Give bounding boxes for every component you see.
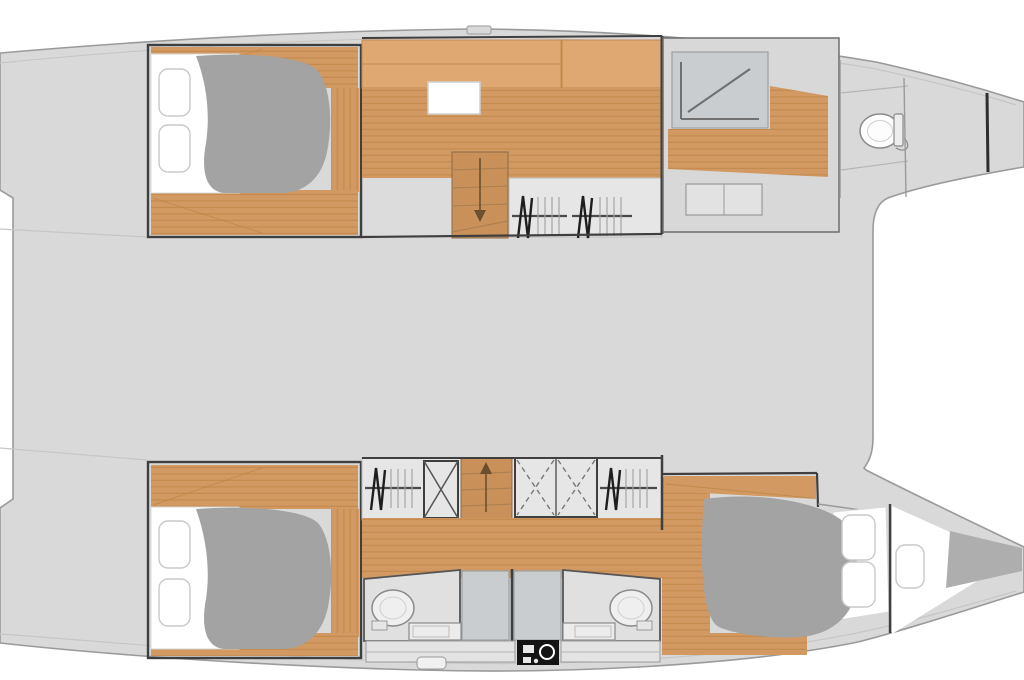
deck-hatch-icon bbox=[467, 26, 491, 34]
owner-bed-pillow-2 bbox=[159, 125, 190, 172]
stairs-up bbox=[461, 458, 512, 520]
vanity-unit bbox=[686, 184, 762, 215]
owner-bed-duvet bbox=[196, 55, 330, 193]
guest-fwd-pillow-1 bbox=[842, 515, 875, 560]
guest-aft-bed-duvet bbox=[196, 508, 331, 649]
guest-aft-pillow-2 bbox=[159, 579, 190, 626]
guest-fwd-bed-duvet bbox=[702, 496, 858, 637]
toilet-icon bbox=[860, 114, 908, 150]
guest-fwd-pillow-2 bbox=[842, 562, 875, 607]
transom-notch bbox=[417, 657, 446, 669]
shower-right bbox=[514, 571, 561, 640]
bow-watertight-bulkhead bbox=[987, 93, 988, 172]
galley-unit-icon bbox=[517, 640, 559, 665]
deck-hatch-white bbox=[428, 82, 480, 114]
owner-bed-pillow-1 bbox=[159, 69, 190, 116]
guest-aft-wood-right bbox=[331, 509, 359, 637]
guest-aft-pillow-1 bbox=[159, 521, 190, 568]
dressing-wood-floor bbox=[362, 88, 662, 178]
owner-cabin-wood-bottom bbox=[151, 190, 358, 235]
owner-cabin-wood-right bbox=[331, 88, 359, 192]
stairs-down bbox=[452, 152, 508, 238]
shower-left bbox=[462, 571, 509, 640]
transom-step-band bbox=[561, 641, 660, 662]
catamaran-floor-plan bbox=[0, 0, 1024, 680]
corner-shower-icon bbox=[672, 52, 768, 128]
sink-icon bbox=[409, 623, 461, 640]
forepeak-pillow bbox=[896, 545, 924, 588]
guest-aft-wood-top bbox=[151, 465, 358, 509]
sink-icon bbox=[563, 623, 615, 640]
dressing-gray-floor bbox=[363, 178, 452, 237]
dressing-cabinets bbox=[362, 40, 662, 88]
